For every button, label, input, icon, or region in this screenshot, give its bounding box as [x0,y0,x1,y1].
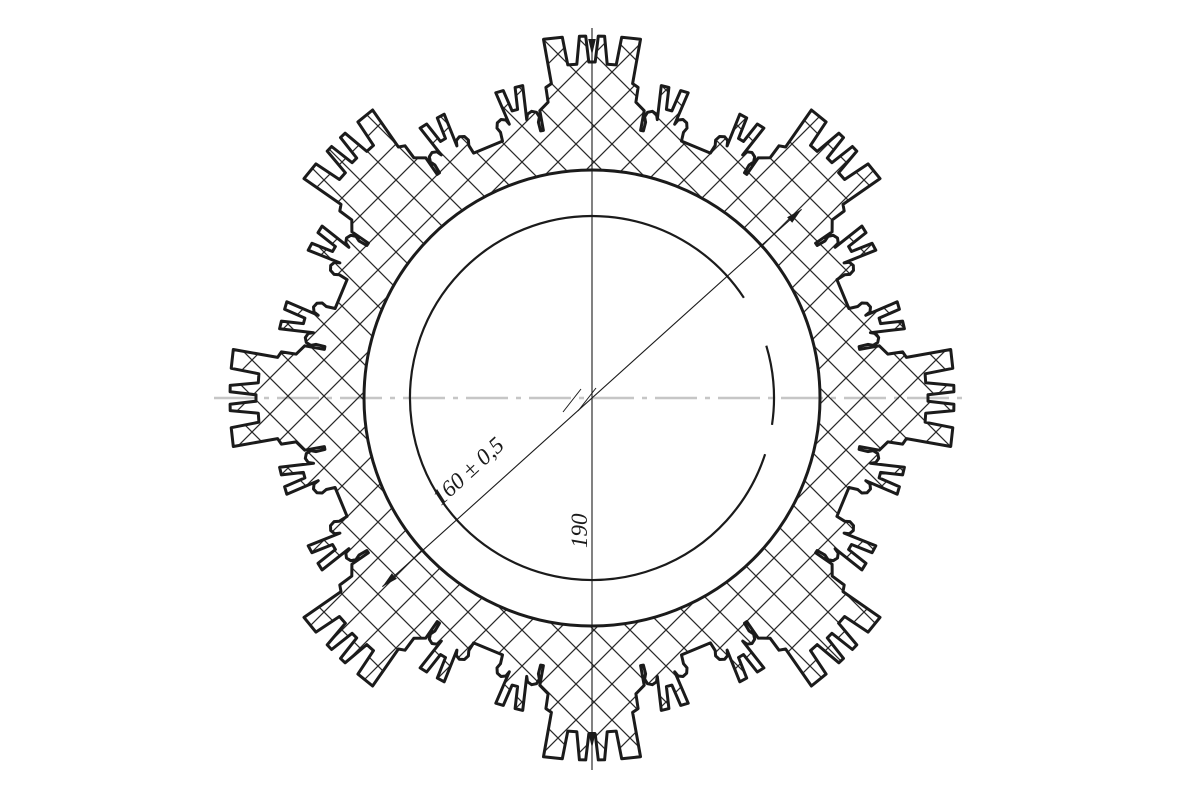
dimension-arrow-top [588,39,596,55]
dimension-label-inner-diameter: 160 ± 0,5 [427,432,508,509]
drawing-page: 160 ± 0,5 190 [0,0,1200,800]
center-tick [578,388,596,411]
center-tick [563,389,581,412]
inner-reference-circle-arc [766,346,774,425]
dimension-label-outer-diameter: 190 [567,513,592,548]
technical-drawing-gear-section: 160 ± 0,5 190 [0,0,1200,800]
